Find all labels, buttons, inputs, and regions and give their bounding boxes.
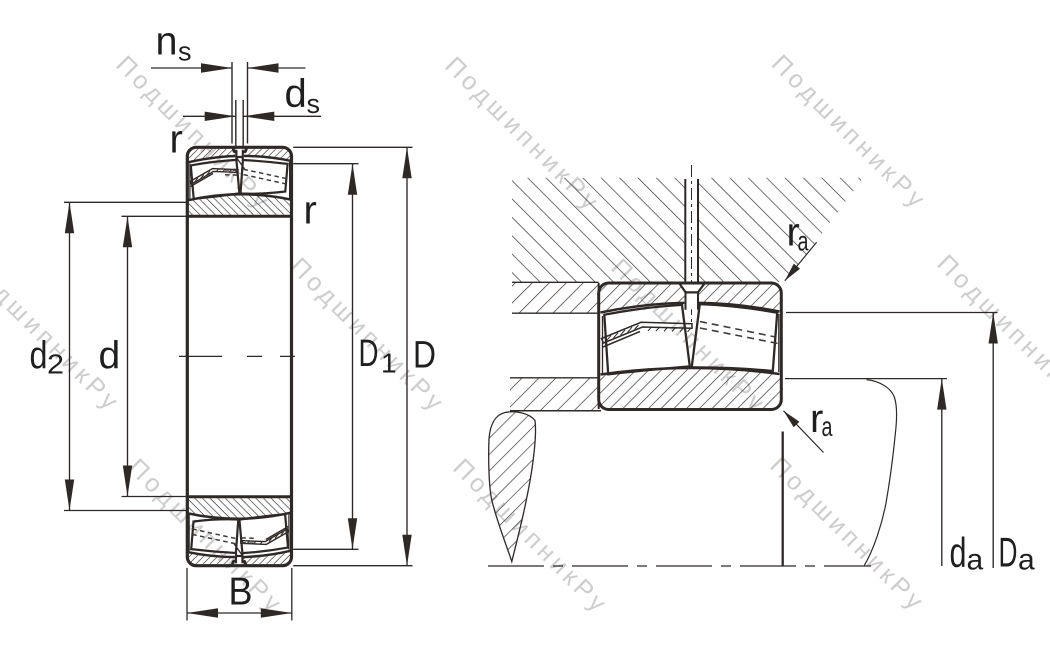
svg-text:D: D [359,333,379,375]
svg-text:a: a [822,411,833,442]
svg-text:d: d [30,335,48,378]
svg-text:a: a [798,226,809,257]
svg-text:s: s [307,89,321,119]
svg-text:r: r [170,118,183,162]
svg-text:a: a [967,544,984,577]
svg-text:a: a [1018,544,1035,577]
svg-text:r: r [304,189,317,233]
svg-text:2: 2 [47,349,64,380]
svg-text:d: d [99,335,121,378]
svg-text:1: 1 [381,348,397,379]
svg-text:d: d [285,72,307,116]
svg-text:d: d [950,529,967,576]
svg-text:B: B [229,571,253,614]
svg-text:D: D [999,529,1018,576]
svg-text:n: n [156,20,178,64]
svg-text:D: D [413,335,436,377]
svg-text:s: s [178,37,192,67]
